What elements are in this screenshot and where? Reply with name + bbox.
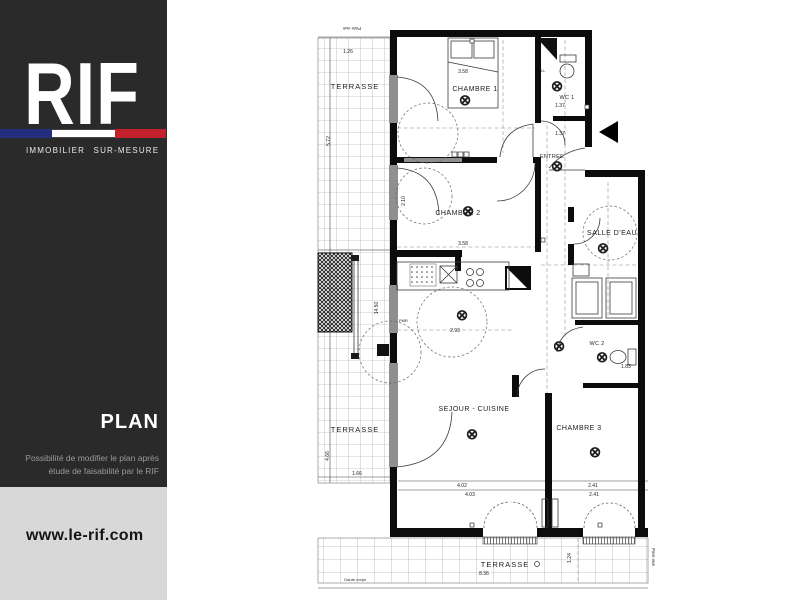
window-chambre2 <box>389 165 398 220</box>
hatched-planter <box>318 253 352 332</box>
window-chambre3 <box>583 528 635 537</box>
dim: 1.24 <box>567 553 573 563</box>
bath-unit <box>606 278 636 318</box>
ll-label: LL <box>541 68 546 73</box>
dim: 8.36 <box>479 571 489 577</box>
radiator <box>552 499 558 527</box>
bed-chambre1 <box>448 38 498 108</box>
dim: 3.58 <box>458 241 468 247</box>
room-label-wc1: WC 1 <box>560 95 575 101</box>
logo-tagline: IMMOBILIER SUR-MESURE <box>26 146 159 155</box>
hob-burner <box>467 269 474 276</box>
dim: 2.41 <box>588 483 598 489</box>
room-label-terrasse-bottom: TERRASSE <box>481 560 529 569</box>
ceiling-light-icon: ⊗ <box>459 92 472 109</box>
ceiling-light-icon: ⊗ <box>597 240 610 257</box>
wc1-toilet <box>560 64 574 78</box>
shower-tray <box>572 278 602 318</box>
window-chambre1 <box>389 75 398 123</box>
bay-window-sejour <box>389 363 398 467</box>
pillow <box>451 41 472 58</box>
entrance-arrow-icon <box>599 121 618 143</box>
ceiling-light-icon: ⊗ <box>456 307 469 324</box>
room-label-chambre2: CHAMBRE 2 <box>435 210 480 217</box>
plan-section-title: PLAN <box>101 411 159 434</box>
pmr-label: PMR <box>399 318 408 323</box>
rif-logo: RIF <box>24 58 140 130</box>
dim: 1.37 <box>555 131 565 137</box>
kitchen-drainer <box>410 264 436 286</box>
dim: 2.10 <box>401 196 407 206</box>
dim: 4.02 <box>457 483 467 489</box>
dim: 2.93 <box>450 328 460 334</box>
dim: 2.41 <box>589 492 599 498</box>
french-door-sejour <box>483 528 537 537</box>
dim: 1.26 <box>343 49 353 55</box>
room-label-salle-deau: SALLE D'EAU <box>587 230 637 237</box>
pare-vue-label: Pare vue <box>342 26 361 31</box>
ceiling-light-icon: ⊗ <box>466 426 479 443</box>
washbasin <box>573 264 589 276</box>
ceiling-light-icon: ⊗ <box>553 338 566 355</box>
website-link[interactable]: www.le-rif.com <box>26 527 143 545</box>
garde-corps-label: Garde corps <box>344 577 366 582</box>
plan-note-line1: Possibilité de modifier le plan après <box>25 453 159 463</box>
dim: 1.66 <box>352 471 362 477</box>
dim: 1.83 <box>621 364 631 370</box>
dim: 4.03 <box>465 492 475 498</box>
window-kitchen <box>389 285 398 333</box>
wc2-toilet <box>610 351 626 364</box>
dim: 5.72 <box>326 136 332 146</box>
ceiling-light-icon: ⊗ <box>589 444 602 461</box>
pillow <box>474 41 494 58</box>
sidebar: RIF IMMOBILIER SUR-MESURE PLAN Possibili… <box>0 0 167 600</box>
french-flag-stripe <box>0 129 166 138</box>
ceiling-light-icon: ⊗ <box>551 78 564 95</box>
section-marker <box>377 344 389 356</box>
room-label-wc2: WC 2 <box>590 341 605 347</box>
ceiling-light-icon: ⊗ <box>596 349 609 366</box>
room-label-chambre3: CHAMBRE 3 <box>556 425 601 432</box>
plan-note-line2: étude de faisabilité par le RIF <box>48 466 159 476</box>
dim: 3.58 <box>458 69 468 75</box>
dim: 14.50 <box>374 302 380 315</box>
room-label-entree: ENTREE <box>540 154 564 160</box>
plan-note: Possibilité de modifier le plan après ét… <box>9 452 159 478</box>
room-label-chambre1: CHAMBRE 1 <box>452 86 497 93</box>
dim: 4.66 <box>325 451 331 461</box>
dim: 1.37 <box>555 103 565 109</box>
ceiling-light-icon: ⊗ <box>551 158 564 175</box>
terrace-grids <box>318 38 648 583</box>
room-label-sejour-cuisine: SEJOUR - CUISINE <box>438 406 509 413</box>
page: ⊗ ⊗ ⊗ ⊗ ⊗ ⊗ ⊗ ⊗ ⊗ ⊗ CHAMBRE 1 WC 1 ENTRE… <box>0 0 800 600</box>
pare-vue-label: Pare vue <box>651 548 656 567</box>
room-label-terrasse-top: TERRASSE <box>331 82 379 91</box>
entrance-opening <box>585 147 592 170</box>
room-label-terrasse-left: TERRASSE <box>331 425 379 434</box>
